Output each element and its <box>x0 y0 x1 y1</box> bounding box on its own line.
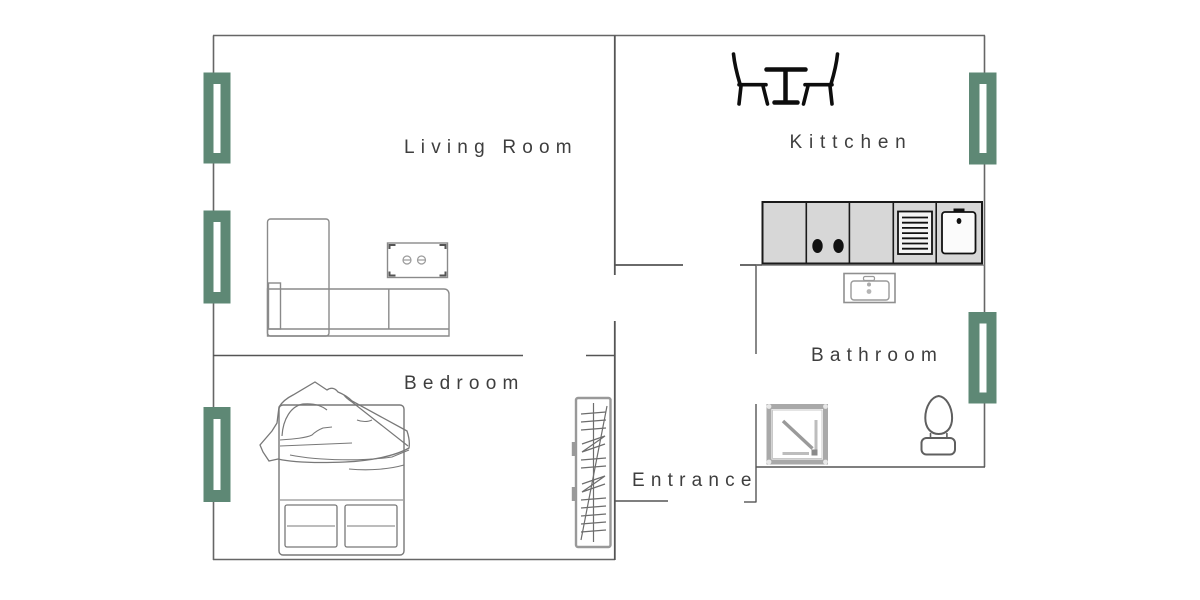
svg-text:Kittchen: Kittchen <box>790 132 913 153</box>
svg-text:Bathroom: Bathroom <box>811 345 943 366</box>
svg-text:Living Room: Living Room <box>404 137 578 158</box>
svg-text:Bedroom: Bedroom <box>404 373 525 394</box>
svg-text:Entrance: Entrance <box>632 470 758 491</box>
